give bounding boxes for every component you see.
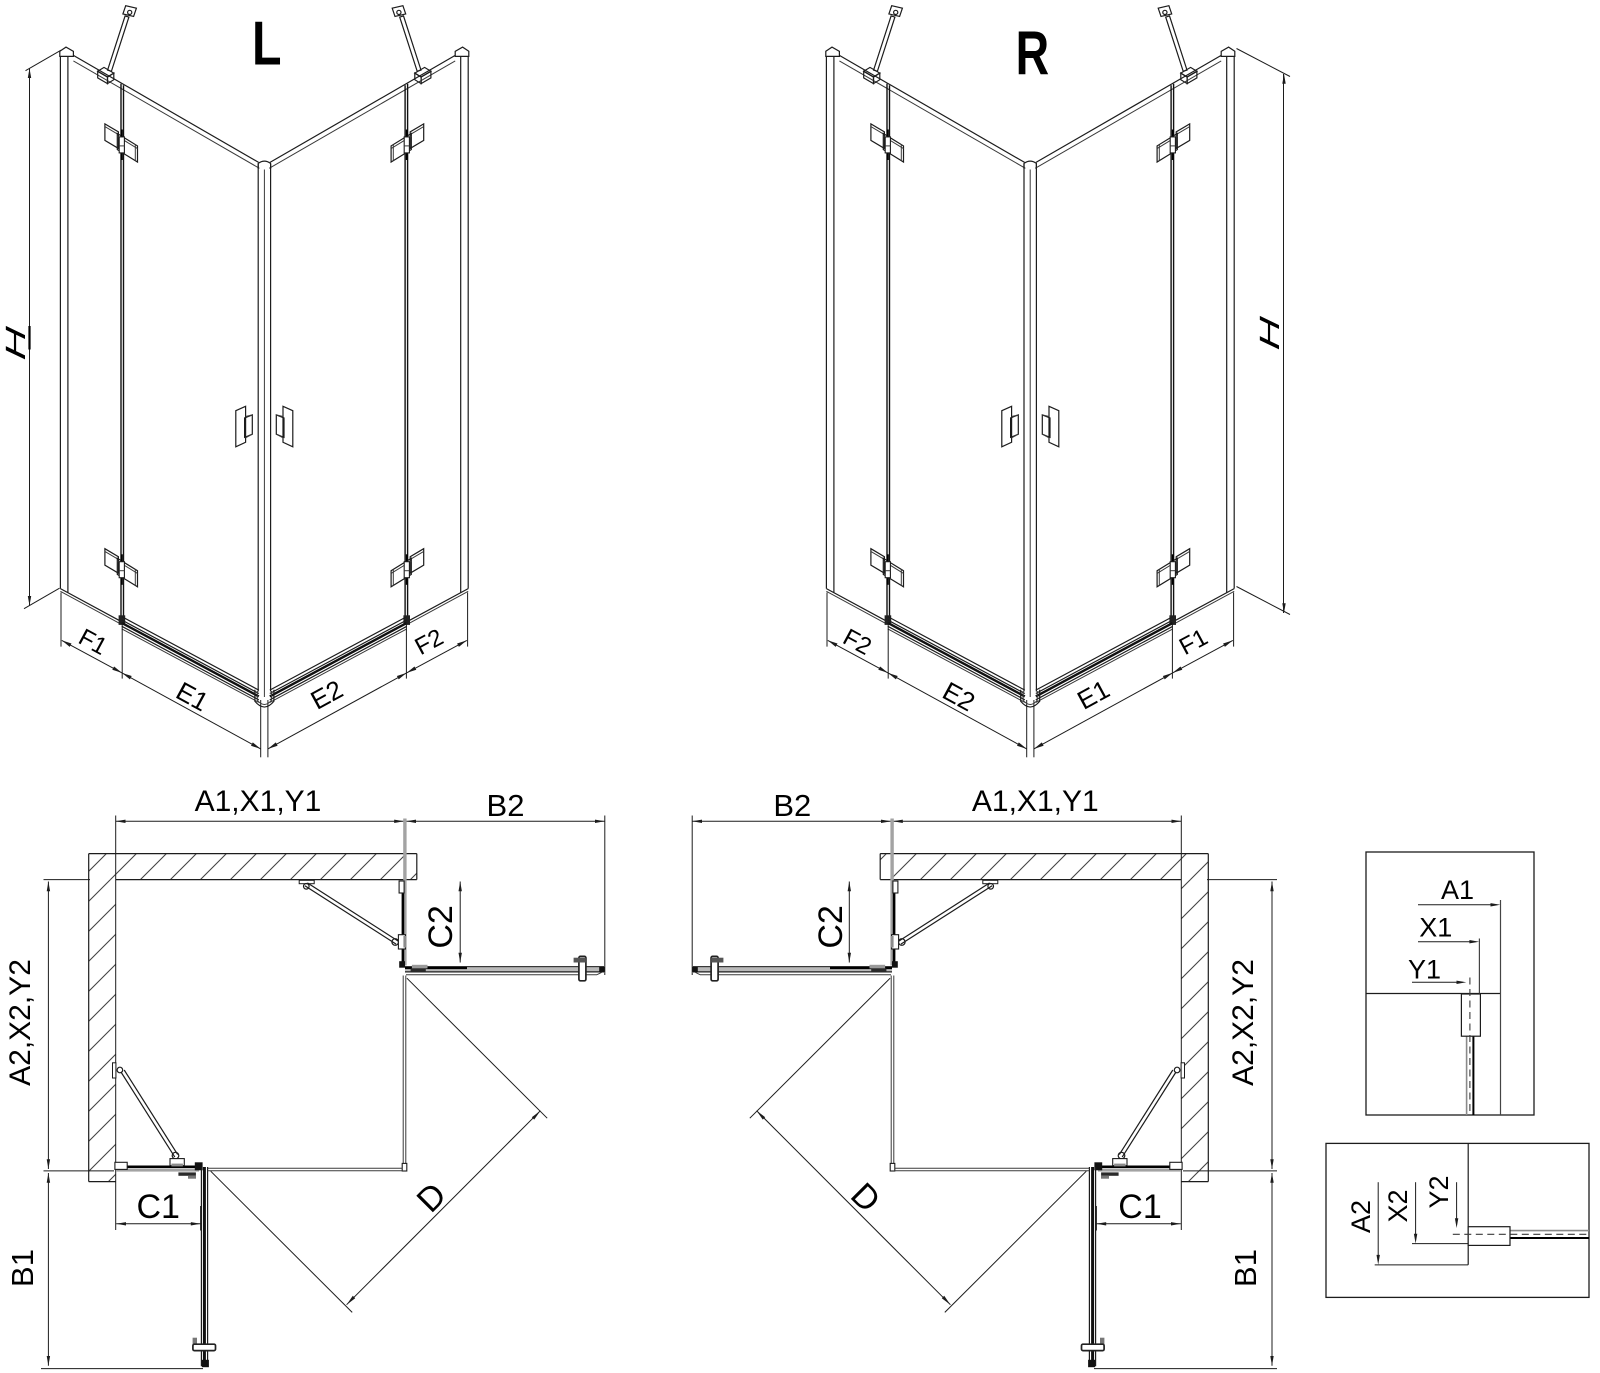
svg-text:A1: A1 [1441, 875, 1474, 905]
svg-text:B1: B1 [1228, 1249, 1263, 1287]
svg-text:A2: A2 [1346, 1200, 1376, 1233]
svg-text:C1: C1 [1118, 1188, 1161, 1226]
svg-text:X2: X2 [1383, 1189, 1413, 1222]
svg-text:A1,X1,Y1: A1,X1,Y1 [972, 785, 1099, 818]
svg-text:B2: B2 [773, 788, 811, 823]
svg-text:X1: X1 [1419, 913, 1452, 943]
svg-text:Y1: Y1 [1408, 955, 1441, 985]
svg-text:B2: B2 [487, 788, 525, 823]
svg-text:A2,X2,Y2: A2,X2,Y2 [4, 959, 37, 1086]
svg-text:C1: C1 [136, 1188, 179, 1226]
svg-text:R: R [1016, 20, 1050, 89]
svg-text:B1: B1 [5, 1249, 40, 1287]
svg-text:C2: C2 [422, 905, 460, 948]
svg-text:L: L [252, 10, 282, 79]
svg-text:A1,X1,Y1: A1,X1,Y1 [195, 785, 322, 818]
svg-text:H: H [1254, 314, 1285, 351]
svg-text:Y2: Y2 [1424, 1175, 1454, 1208]
svg-text:H: H [0, 324, 31, 361]
svg-text:C2: C2 [812, 905, 850, 948]
svg-text:A2,X2,Y2: A2,X2,Y2 [1227, 959, 1260, 1086]
